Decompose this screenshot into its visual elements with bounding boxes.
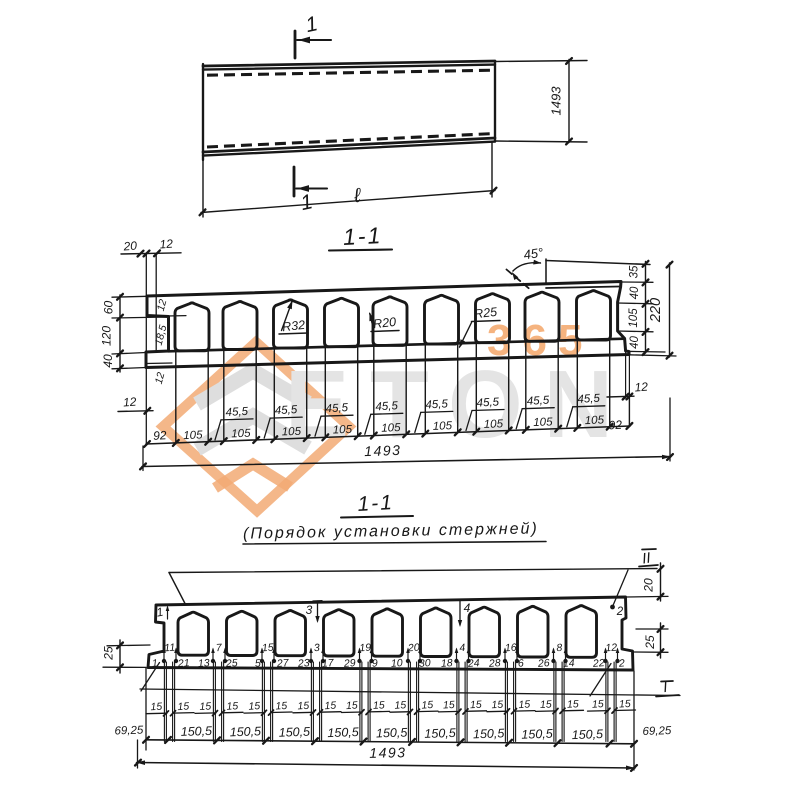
svg-text:45,5: 45,5 xyxy=(375,400,399,413)
svg-text:20: 20 xyxy=(642,578,656,593)
svg-text:1493: 1493 xyxy=(369,744,406,761)
svg-text:15: 15 xyxy=(443,699,455,712)
svg-text:105: 105 xyxy=(484,418,504,431)
svg-text:25: 25 xyxy=(102,646,116,661)
svg-text:45,5: 45,5 xyxy=(225,406,249,419)
svg-text:30: 30 xyxy=(419,657,432,670)
svg-text:12: 12 xyxy=(634,380,649,395)
svg-text:150,5: 150,5 xyxy=(327,725,359,740)
svg-text:45°: 45° xyxy=(523,245,545,263)
svg-text:45,5: 45,5 xyxy=(425,398,449,411)
svg-text:15: 15 xyxy=(619,698,631,711)
svg-text:15: 15 xyxy=(540,698,552,711)
svg-text:105: 105 xyxy=(433,420,453,433)
svg-text:45,5: 45,5 xyxy=(577,393,601,406)
svg-text:1493: 1493 xyxy=(364,442,402,459)
svg-text:15: 15 xyxy=(491,699,503,712)
svg-text:220: 220 xyxy=(648,298,664,323)
svg-text:R25: R25 xyxy=(473,305,497,321)
svg-text:45,5: 45,5 xyxy=(325,402,349,415)
svg-text:105: 105 xyxy=(333,424,353,437)
svg-text:29: 29 xyxy=(343,657,357,670)
svg-text:22: 22 xyxy=(592,657,606,670)
svg-text:40: 40 xyxy=(629,286,641,299)
svg-text:3: 3 xyxy=(306,603,313,617)
svg-text:92: 92 xyxy=(153,428,167,443)
svg-text:15: 15 xyxy=(421,699,433,712)
svg-text:92: 92 xyxy=(608,418,622,433)
svg-text:2: 2 xyxy=(617,657,625,669)
svg-text:150,5: 150,5 xyxy=(180,724,212,739)
svg-text:15: 15 xyxy=(177,700,189,713)
svg-text:1-1: 1-1 xyxy=(342,222,383,250)
svg-text:26: 26 xyxy=(537,657,551,670)
svg-text:20: 20 xyxy=(122,239,138,254)
svg-text:150,5: 150,5 xyxy=(278,725,310,740)
svg-text:10: 10 xyxy=(391,657,404,670)
svg-text:15: 15 xyxy=(373,699,385,712)
svg-text:105: 105 xyxy=(585,414,605,427)
svg-text:2: 2 xyxy=(616,606,624,618)
svg-text:105: 105 xyxy=(183,429,203,442)
svg-text:69,25: 69,25 xyxy=(114,724,144,737)
svg-text:150,5: 150,5 xyxy=(229,724,261,739)
svg-text:15: 15 xyxy=(346,699,358,712)
svg-text:60: 60 xyxy=(102,301,116,315)
svg-text:105: 105 xyxy=(628,308,640,328)
svg-text:40: 40 xyxy=(629,336,641,349)
svg-text:15: 15 xyxy=(394,699,406,712)
svg-text:8: 8 xyxy=(556,642,563,654)
svg-text:12: 12 xyxy=(123,395,138,410)
svg-text:27: 27 xyxy=(276,657,291,670)
svg-text:150,5: 150,5 xyxy=(376,725,408,740)
svg-text:25: 25 xyxy=(225,657,239,670)
svg-text:18: 18 xyxy=(441,657,454,670)
svg-text:15: 15 xyxy=(567,698,579,711)
svg-text:25: 25 xyxy=(643,635,657,650)
svg-text:15: 15 xyxy=(470,699,482,712)
svg-text:5: 5 xyxy=(254,657,261,669)
svg-text:150,5: 150,5 xyxy=(521,727,553,742)
svg-text:15: 15 xyxy=(518,698,530,711)
svg-text:15: 15 xyxy=(199,700,211,713)
svg-text:15: 15 xyxy=(297,700,309,713)
svg-text:105: 105 xyxy=(533,416,553,429)
svg-text:120: 120 xyxy=(100,326,114,346)
svg-text:R20: R20 xyxy=(372,315,396,331)
svg-text:45,5: 45,5 xyxy=(476,396,500,409)
svg-text:69,25: 69,25 xyxy=(642,725,672,738)
svg-text:3: 3 xyxy=(313,642,320,654)
svg-text:21: 21 xyxy=(177,657,190,670)
svg-text:1493: 1493 xyxy=(549,86,564,116)
svg-text:9: 9 xyxy=(371,657,378,669)
svg-text:11: 11 xyxy=(164,642,176,655)
svg-text:40: 40 xyxy=(101,354,115,368)
svg-text:105: 105 xyxy=(231,428,251,441)
svg-text:15: 15 xyxy=(592,698,604,711)
svg-text:150,5: 150,5 xyxy=(473,726,505,741)
svg-text:15: 15 xyxy=(275,700,287,713)
svg-text:45,5: 45,5 xyxy=(275,404,299,417)
svg-text:150,5: 150,5 xyxy=(424,726,456,741)
svg-text:1: 1 xyxy=(151,657,158,669)
svg-text:23: 23 xyxy=(297,657,311,670)
svg-text:15: 15 xyxy=(324,700,336,713)
svg-text:28: 28 xyxy=(488,657,502,670)
svg-text:45,5: 45,5 xyxy=(527,395,551,408)
svg-text:4: 4 xyxy=(459,642,466,654)
svg-text:6: 6 xyxy=(517,657,524,669)
svg-text:1-1: 1-1 xyxy=(357,491,395,516)
svg-text:105: 105 xyxy=(282,426,302,439)
svg-text:15: 15 xyxy=(248,700,260,713)
svg-text:15: 15 xyxy=(226,700,238,713)
svg-text:24: 24 xyxy=(467,657,481,670)
svg-text:17: 17 xyxy=(322,657,336,670)
svg-text:35: 35 xyxy=(629,265,641,278)
svg-text:12: 12 xyxy=(159,237,174,252)
svg-text:150,5: 150,5 xyxy=(571,727,603,742)
svg-text:15: 15 xyxy=(150,701,162,714)
svg-text:105: 105 xyxy=(381,422,401,435)
svg-text:4: 4 xyxy=(464,601,471,615)
svg-text:13: 13 xyxy=(198,657,211,670)
